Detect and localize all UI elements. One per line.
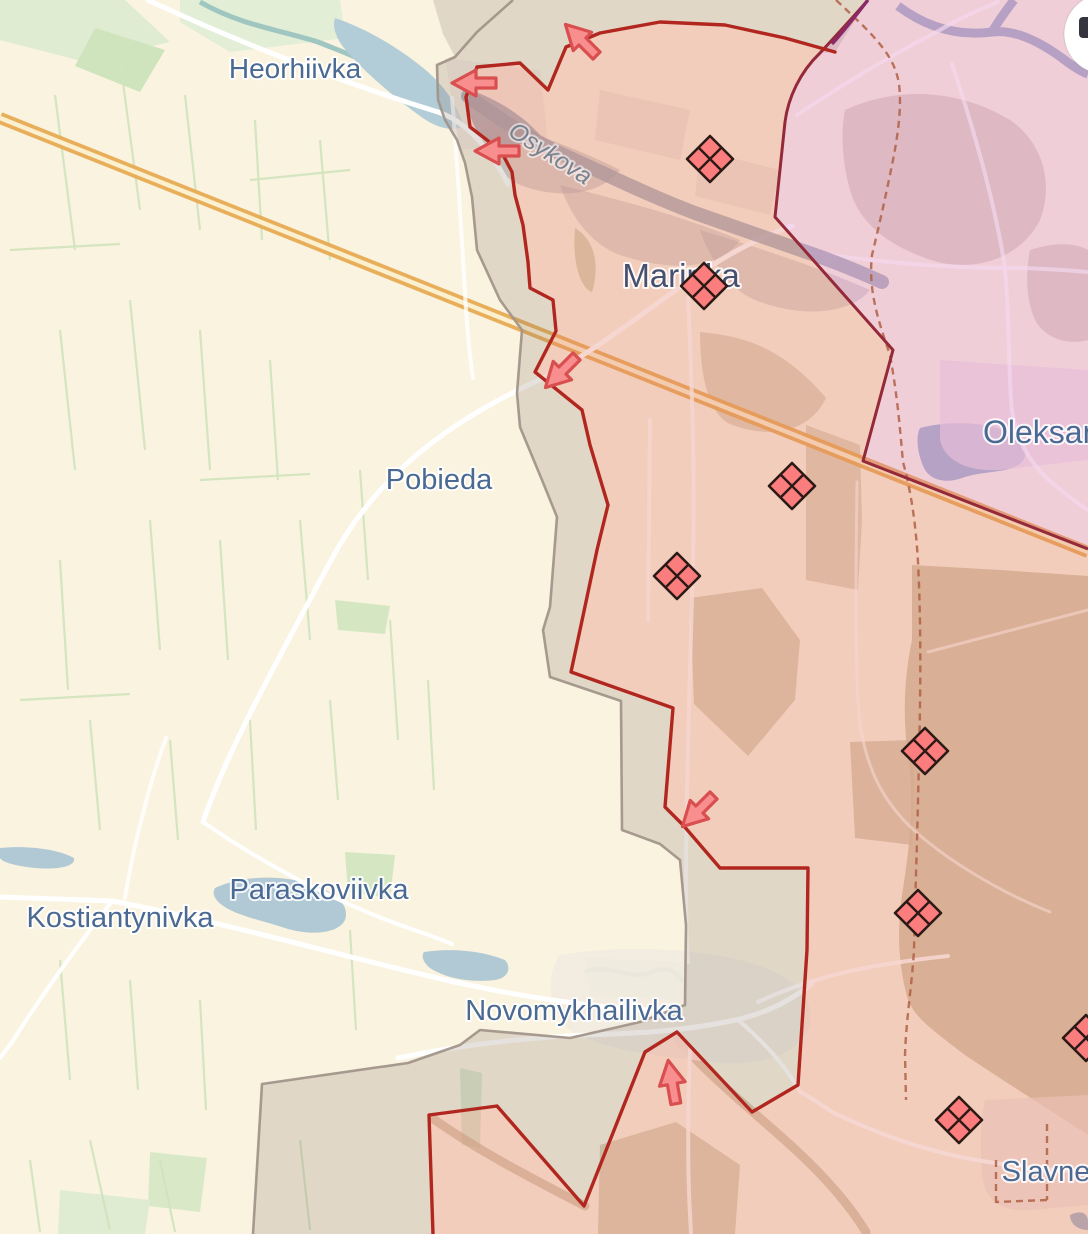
place-label-slavne: Slavne [1002, 1156, 1088, 1188]
place-label-pobieda: Pobieda [386, 464, 493, 496]
place-label-kostiantynivka: Kostiantynivka [27, 902, 215, 934]
place-label-paraskoviivka: Paraskoviivka [230, 874, 410, 906]
map-control-icon [1079, 17, 1088, 38]
place-label-heorhiivka: Heorhiivka [229, 53, 362, 84]
place-label-oleksandrivka: Oleksandrivka [983, 414, 1088, 450]
map-canvas[interactable]: HeorhiivkaMarinkaPobiedaKostiantynivkaPa… [0, 0, 1088, 1234]
place-label-novomykhailivka: Novomykhailivka [465, 995, 683, 1027]
